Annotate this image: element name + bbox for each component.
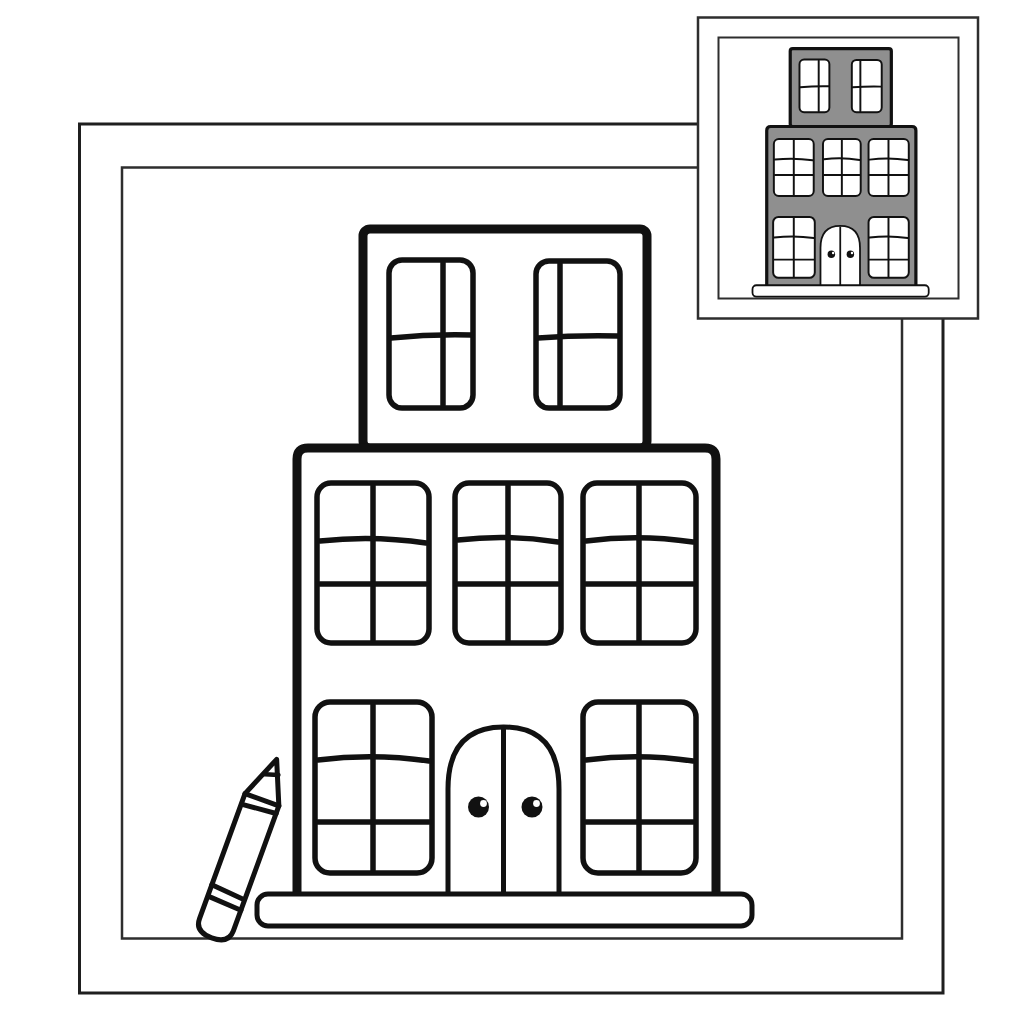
coloring-page-canvas [0,0,1024,1024]
coloring-page [0,0,1024,1024]
main-building-drawing [257,229,752,926]
reference-thumbnail [698,18,978,319]
